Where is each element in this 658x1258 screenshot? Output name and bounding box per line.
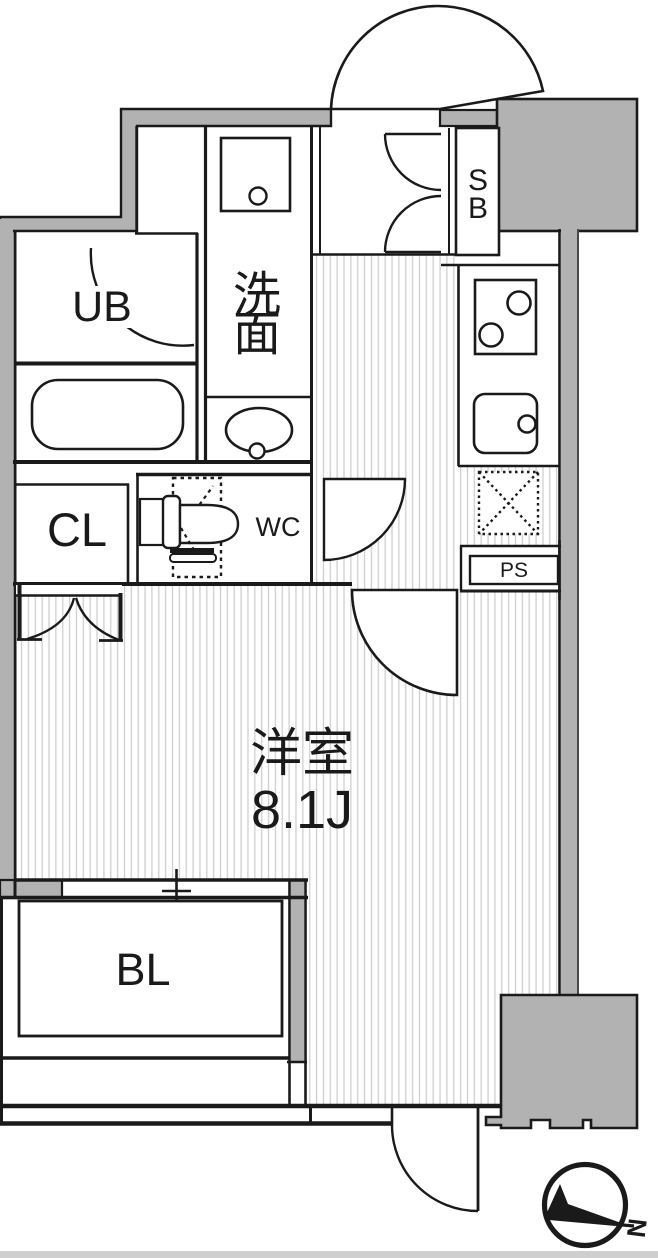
svg-text:WC: WC (256, 512, 301, 542)
svg-text:B: B (468, 192, 488, 225)
svg-text:N: N (621, 1217, 653, 1239)
svg-text:CL: CL (47, 503, 107, 556)
svg-text:PS: PS (500, 559, 528, 582)
svg-text:UB: UB (72, 283, 132, 331)
svg-text:洋室: 洋室 (250, 725, 354, 783)
svg-text:面: 面 (233, 308, 281, 361)
svg-text:BL: BL (115, 944, 170, 995)
svg-text:8.1J: 8.1J (251, 780, 353, 840)
